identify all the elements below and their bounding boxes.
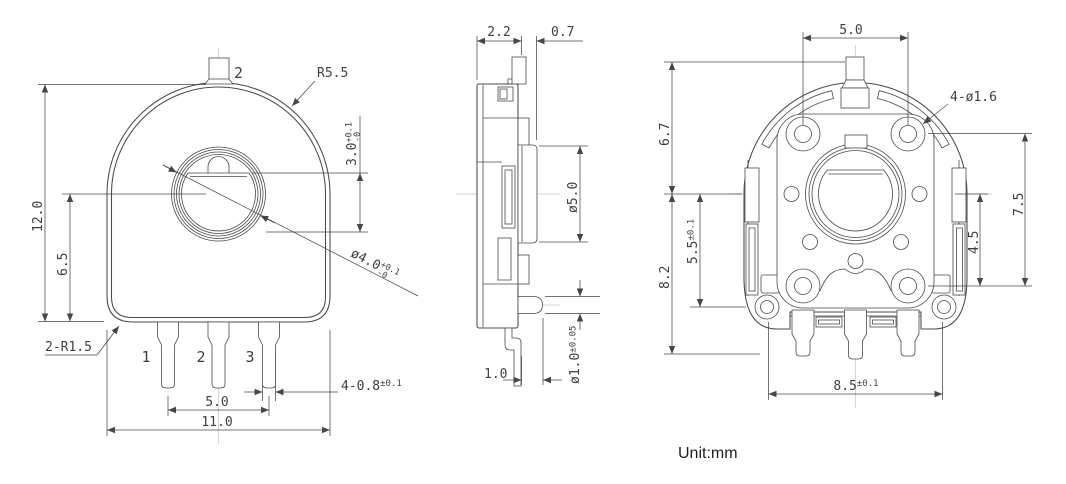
dim-back-hole-offset: 4.5 [967, 231, 982, 254]
dim-front-shaft-dia: ø4.0+0.1-0 [347, 246, 402, 286]
dim-side-pin-offset: 1.0 [484, 367, 507, 382]
dim-front-overall-width: 11.0 [201, 415, 232, 430]
front-terminals [158, 322, 280, 388]
dim-back-hole-span: 7.5 [1012, 193, 1027, 216]
dim-side-pin-dia: ø1.0±0.05 [568, 326, 583, 384]
dim-side-collar-dia: ø5.0 [566, 182, 581, 213]
side-collar-boss [518, 145, 537, 243]
back-plate [777, 114, 934, 316]
potentiometer-drawing: 12.0 6.5 R5.5 2 3.0+0.1-0 ø4.0+0.1-0 [0, 0, 1066, 484]
dim-front-body-radius: R5.5 [317, 66, 348, 81]
side-center-pin [518, 297, 543, 314]
technical-drawing-page: 12.0 6.5 R5.5 2 3.0+0.1-0 ø4.0+0.1-0 [0, 0, 1066, 484]
front-top-stem [205, 58, 233, 84]
dim-back-cover-height: 5.5±0.1 [686, 219, 701, 264]
front-view: 12.0 6.5 R5.5 2 3.0+0.1-0 ø4.0+0.1-0 [31, 48, 418, 444]
front-terminal-3-label: 3 [245, 348, 254, 366]
unit-note: Unit:mm [678, 445, 738, 462]
dim-back-lower-height: 8.2 [658, 266, 673, 289]
dim-front-pin-pitch: 5.0 [205, 395, 228, 410]
back-top-stem [841, 57, 869, 108]
front-terminal-2-label: 2 [196, 348, 205, 366]
dim-back-mounting-holes: 4-ø1.6 [950, 90, 997, 105]
dim-front-center-height: 6.5 [56, 253, 71, 276]
back-view: 5.0 4-ø1.6 6.7 8.2 5.5±0.1 7.5 [658, 23, 1032, 408]
dim-side-body-thickness: 2.2 [487, 25, 510, 40]
dim-front-pin-width: 4-0.8±0.1 [341, 379, 402, 394]
dim-front-overall-height: 12.0 [31, 201, 46, 232]
back-terminals [792, 310, 919, 359]
dim-back-upper-height: 6.7 [658, 123, 673, 146]
dim-back-hole-pitch: 5.0 [839, 23, 862, 38]
front-body-outline [107, 83, 330, 323]
dim-side-bracket-offset: 0.7 [551, 25, 574, 40]
front-terminal-1-label: 1 [141, 348, 150, 366]
side-profile [477, 57, 543, 386]
dim-back-tab-pitch: 8.5±0.1 [833, 379, 878, 394]
front-top-terminal-label: 2 [234, 64, 243, 82]
side-top-stem [512, 57, 526, 84]
dim-front-corner-radius: 2-R1.5 [45, 340, 92, 355]
side-view: 2.2 0.7 ø5.0 ø1.0±0.05 1.0 [456, 25, 600, 386]
